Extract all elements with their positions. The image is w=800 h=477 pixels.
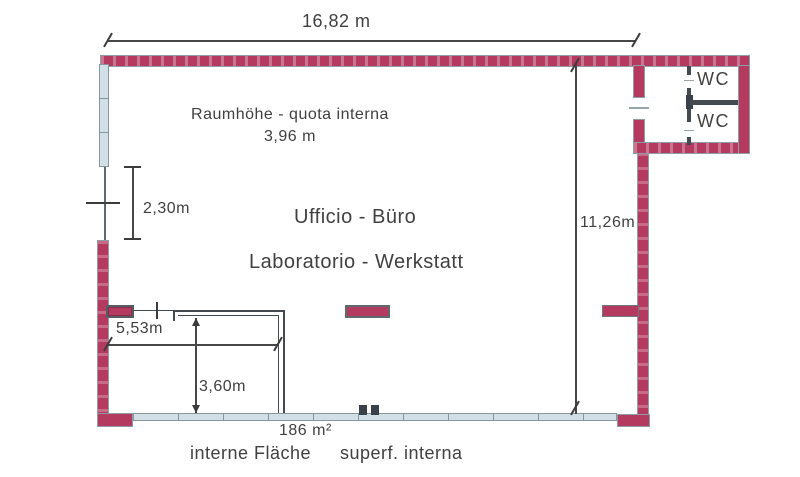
dimension-door-label: 2,30m	[143, 200, 190, 218]
inner-partition-right-outer	[283, 310, 285, 413]
wc-wall-bottom	[633, 142, 750, 154]
room-label-workshop: Laboratorio - Werkstatt	[249, 251, 464, 274]
radiator	[106, 305, 134, 318]
room-height-label: Raumhöhe - quota interna	[175, 106, 405, 124]
dimension-total-width-label: 16,82 m	[302, 11, 371, 32]
dimension-inner-depth-line	[195, 318, 197, 413]
dimension-tick	[124, 166, 141, 168]
room-height-value: 3,96 m	[175, 128, 405, 146]
wc-partition-vertical	[687, 137, 691, 145]
door-opening-left-tick	[86, 202, 120, 204]
area-label-italian: superf. interna	[340, 443, 463, 464]
door-handle	[371, 405, 379, 415]
dimension-inner-depth-label: 3,60m	[199, 378, 246, 396]
wall-pier-right	[602, 305, 639, 317]
wc-partition-vertical	[687, 66, 691, 75]
dimension-inner-width-label: 5,53m	[116, 320, 163, 338]
dimension-depth-line	[575, 62, 577, 414]
dimension-depth-label: 11,26m	[580, 214, 635, 232]
wall-top	[100, 55, 750, 67]
inner-partition-tick	[156, 302, 158, 319]
wc-label-top: WC	[697, 69, 730, 90]
inner-partition-link-line	[133, 310, 173, 311]
wall-corner-bottom-right	[617, 414, 650, 427]
wc-door-tick	[684, 130, 694, 131]
inner-partition-step	[173, 310, 175, 321]
wall-right	[637, 152, 649, 427]
wall-left	[97, 240, 109, 415]
dimension-door-line	[132, 167, 134, 240]
inner-partition-top-outer	[173, 310, 283, 312]
wc-partition-horizontal	[690, 100, 738, 105]
area-label-german: interne Fläche	[190, 443, 311, 464]
wc-label-bottom: WC	[697, 111, 730, 132]
dimension-inner-width-line	[108, 344, 278, 346]
pillar-center	[345, 305, 390, 318]
floor-plan: 16,82 m WC WC 2,30m 11,26m	[0, 0, 800, 477]
room-label-office: Ufficio - Büro	[294, 206, 416, 229]
dimension-arrow-up	[192, 318, 200, 326]
window-wall-left	[99, 64, 109, 167]
inner-partition-top-inner	[178, 315, 279, 316]
dimension-arrow-down	[192, 405, 200, 413]
area-value: 186 m²	[279, 422, 332, 440]
door-handle	[359, 405, 367, 415]
wall-corner-bottom-left	[97, 413, 133, 427]
wc-door-tick	[684, 80, 694, 81]
wc-wall-left-upper	[633, 65, 645, 98]
wc-wall-right	[738, 65, 750, 154]
wc-door-tick	[629, 107, 649, 109]
dimension-tick	[124, 238, 141, 240]
dimension-total-width-line	[108, 40, 636, 42]
inner-partition-right-inner	[278, 315, 279, 413]
